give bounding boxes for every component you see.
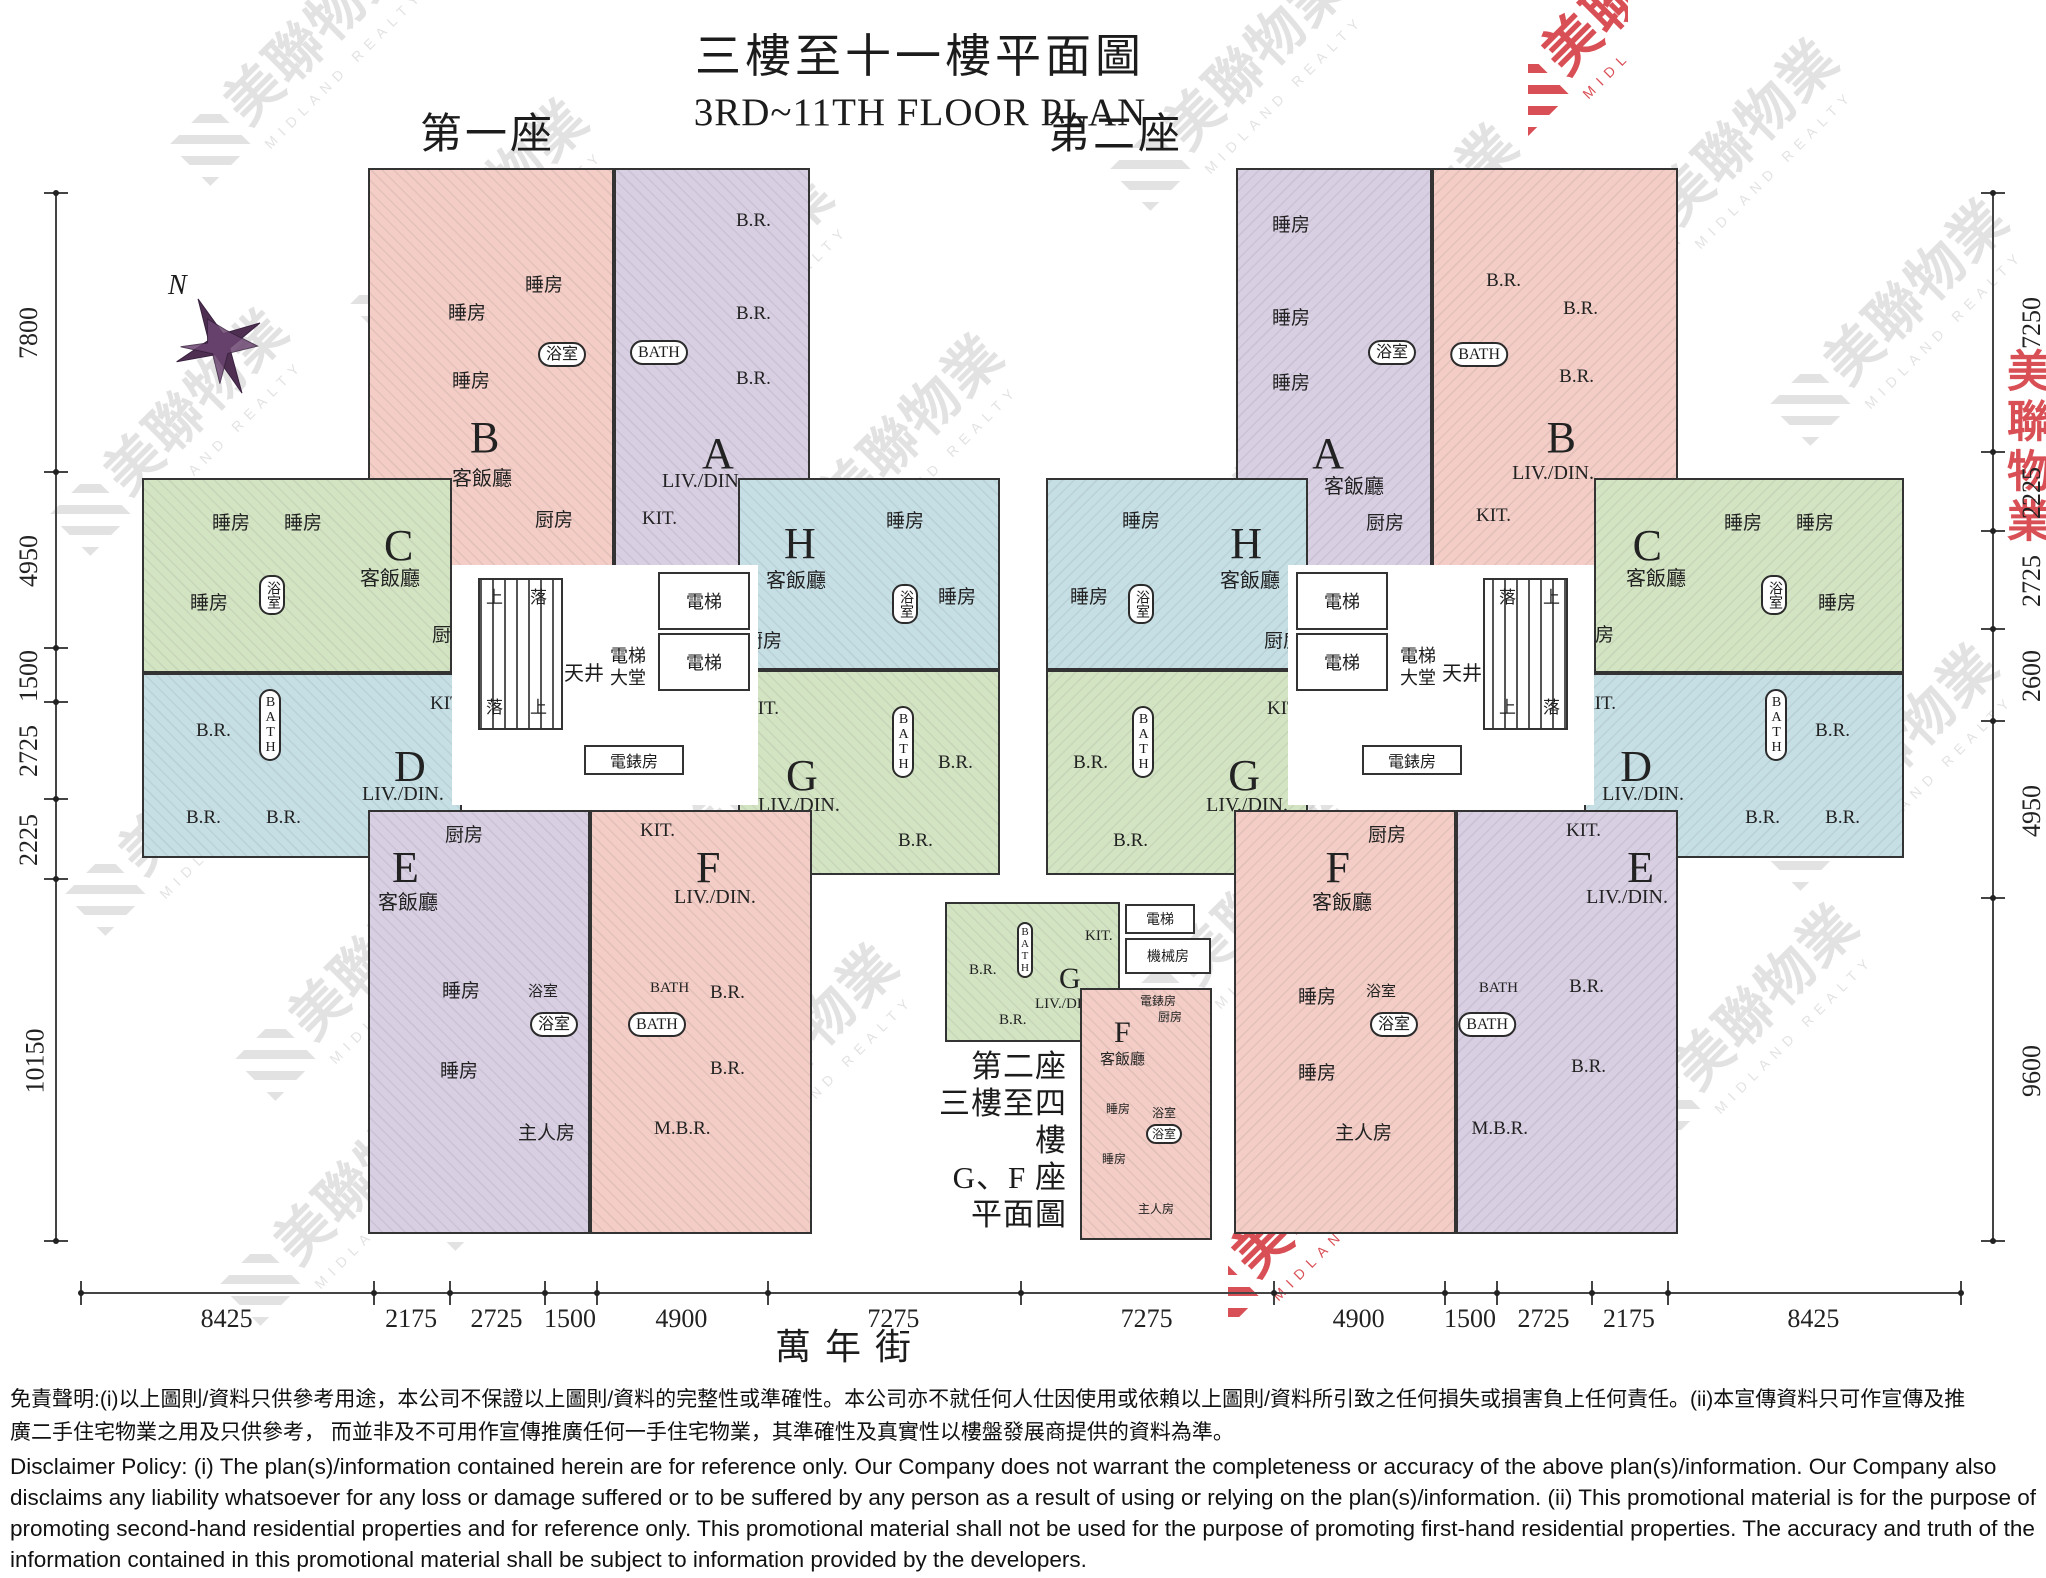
lightwell-label: 天井	[1442, 657, 1482, 686]
unit-letter: H	[784, 518, 816, 569]
midland-logo-icon	[1228, 1255, 1259, 1334]
room-label: B.R.	[1563, 298, 1598, 320]
dimension-tick-dot	[1665, 1290, 1671, 1296]
room-label: 睡房	[1724, 508, 1762, 535]
kitchen-label: KIT.	[642, 508, 677, 530]
room-label: 睡房	[1106, 1100, 1130, 1117]
stair-up-label: 上	[1543, 583, 1560, 608]
unit-letter: G	[1059, 962, 1081, 996]
dimension-label: 2725	[2017, 555, 2046, 607]
dimension-label: 2225	[14, 814, 44, 866]
room-label: 睡房	[1818, 588, 1856, 615]
unit-H: H 客飯廳 睡房 睡房 浴室 厨房	[1046, 478, 1308, 670]
bath-label: BATH	[630, 340, 688, 365]
dimension-tick-dot	[53, 190, 59, 196]
kitchen-label: 厨房	[1158, 1008, 1182, 1025]
midland-watermark-red: 美聯物業MIDLAND REALTY	[0, 0, 62, 140]
dimension-label: 2175	[379, 1304, 443, 1334]
disclaimer-chinese-line2: 廣二手住宅物業之用及只供參考， 而並非及不可用作宣傳推廣任何一手住宅物業，其準確…	[10, 1416, 2038, 1449]
room-label: B.R.	[196, 720, 231, 742]
unit-F: 厨房 F 客飯廳 浴室 浴室 睡房 睡房 主人房	[1234, 810, 1456, 1234]
master-bedroom-label: 主人房	[518, 1118, 575, 1145]
meter-room-label: 電錶房	[1140, 992, 1176, 1009]
room-label: 睡房	[440, 1056, 478, 1083]
dimension-tick-dot	[1990, 895, 1996, 901]
stair-down-label: 落	[486, 693, 503, 718]
room-label: B.R.	[1113, 830, 1148, 852]
dimension-label: 8425	[1781, 1304, 1845, 1334]
block1-label: 第一座	[420, 100, 555, 161]
dimension-label: 2725	[14, 725, 44, 777]
kitchen-label: KIT.	[1476, 505, 1511, 527]
lift-box: 電梯	[658, 572, 750, 630]
dimension-label: 2725	[1512, 1304, 1576, 1334]
unit-H: H 客飯廳 睡房 睡房 浴室 厨房	[738, 478, 1000, 670]
bath-label: 浴室	[892, 584, 918, 624]
bath-label: BATH	[1765, 689, 1787, 761]
dimension-label: 1500	[1438, 1304, 1502, 1334]
dimension-label: 1500	[538, 1304, 602, 1334]
disclaimer-english: Disclaimer Policy: (i) The plan(s)/infor…	[10, 1451, 2038, 1575]
bath-label: 浴室	[530, 1012, 578, 1037]
bath-label: 浴室	[1152, 1104, 1176, 1121]
dimension-label: 2225	[2017, 467, 2046, 519]
midland-logo-icon	[1528, 53, 1569, 135]
unit-C: 睡房 睡房 睡房 浴室 C 客飯廳 厨房	[1594, 478, 1904, 673]
unit-letter: F	[1114, 1016, 1131, 1050]
kitchen-label: KIT.	[1085, 928, 1113, 945]
dimension-axis	[55, 192, 57, 1240]
living-dining-label: 客飯廳	[1220, 564, 1280, 593]
midland-logo-icon	[64, 853, 146, 935]
living-dining-label: 客飯廳	[378, 886, 438, 915]
bath-label: 浴室	[1370, 1012, 1418, 1037]
title-english: 3RD~11TH FLOOR PLAN	[520, 90, 1320, 135]
master-bedroom-label: M.B.R.	[654, 1118, 711, 1140]
dimension-label: 4900	[1327, 1304, 1391, 1334]
lift-lobby-line2: 大堂	[1400, 667, 1436, 689]
room-label: 睡房	[448, 298, 486, 325]
dimension-label: 4950	[14, 535, 44, 587]
street-name: 萬年街	[700, 1318, 1000, 1370]
lift-box: 電梯	[1296, 633, 1388, 691]
dimension-tick-dot	[765, 1290, 771, 1296]
dimension-tick-dot	[1990, 528, 1996, 534]
dimension-label: 8425	[195, 1304, 259, 1334]
lift-lobby-line2: 大堂	[610, 667, 646, 689]
kitchen-label: KIT.	[640, 820, 675, 842]
bath-label: BATH	[892, 706, 914, 778]
lift-lobby-line1: 電梯	[1400, 645, 1436, 667]
dimension-tick-dot	[542, 1290, 548, 1296]
dimension-tick-dot	[594, 1290, 600, 1296]
bath-label: 浴室	[1761, 575, 1787, 615]
dimension-label: 7800	[14, 307, 44, 359]
living-dining-label: LIV./DIN.	[1512, 462, 1594, 485]
bath-label: BATH	[628, 1012, 686, 1037]
dimension-tick-dot	[1589, 1290, 1595, 1296]
room-label: B.R.	[898, 830, 933, 852]
living-dining-label: 客飯廳	[1324, 470, 1384, 499]
living-dining-label: LIV./DIN.	[674, 886, 756, 909]
room-label: B.R.	[1825, 807, 1860, 829]
room-label: 睡房	[1272, 303, 1310, 330]
dimension-tick-dot	[1990, 449, 1996, 455]
room-label: B.R.	[1559, 366, 1594, 388]
midland-watermark-red: 美聯物業MIDLAND REALTY	[1528, 0, 1628, 140]
master-bedroom-label: M.B.R.	[1472, 1118, 1529, 1140]
page-title: 三樓至十一樓平面圖 3RD~11TH FLOOR PLAN	[520, 20, 1320, 135]
dimension-tick-dot	[1990, 1238, 1996, 1244]
room-label: 睡房	[1796, 508, 1834, 535]
mini-plan-caption: 第二座 三樓至四樓 G、F 座平面圖	[935, 1048, 1067, 1233]
dimension-label: 1500	[14, 650, 44, 702]
dimension-label: 2600	[2017, 650, 2046, 702]
room-label: 睡房	[190, 588, 228, 615]
room-label: B.R.	[736, 368, 771, 390]
dimension-label: 9600	[2017, 1045, 2046, 1097]
dimension-label: 7250	[2017, 297, 2046, 349]
room-label: B.R.	[736, 210, 771, 232]
mini-caption-line: G、F 座平面圖	[935, 1159, 1067, 1233]
mini-caption-line: 三樓至四樓	[935, 1085, 1067, 1159]
bath-label: BATH	[1132, 706, 1154, 778]
living-dining-label: 客飯廳	[1626, 562, 1686, 591]
mini-machine-room: 機械房	[1125, 938, 1211, 974]
living-dining-label: 客飯廳	[360, 562, 420, 591]
meter-room-label: 電錶房	[1362, 745, 1462, 775]
dimension-tick-dot	[1271, 1290, 1277, 1296]
dimension-label: 4950	[2017, 785, 2046, 837]
bath-label: BATH	[259, 689, 281, 761]
dimension-tick-dot	[53, 796, 59, 802]
dimension-tick-dot	[53, 699, 59, 705]
master-bedroom-label: 主人房	[1335, 1118, 1392, 1145]
living-dining-label: LIV./DIN.	[1602, 783, 1684, 806]
kitchen-label: 厨房	[445, 820, 483, 847]
room-label: B.R.	[186, 807, 221, 829]
bath-label: 浴室	[1128, 584, 1154, 624]
unit-letter: B	[470, 412, 499, 463]
dimension-tick-dot	[53, 876, 59, 882]
dimension-tick-dot	[1442, 1290, 1448, 1296]
room-label: B.R.	[266, 807, 301, 829]
room-label: B.R.	[938, 752, 973, 774]
unit-letter: H	[1230, 518, 1262, 569]
bath-label: BATH	[1450, 342, 1508, 367]
room-label: B.R.	[999, 1012, 1027, 1029]
bath-label: 浴室	[1146, 1124, 1182, 1144]
dimension-tick-dot	[53, 645, 59, 651]
room-label: 睡房	[1102, 1150, 1126, 1167]
living-dining-label: LIV./DIN.	[662, 470, 744, 493]
room-label: B.R.	[1073, 752, 1108, 774]
dimension-tick-dot	[447, 1290, 453, 1296]
bath-label: BATH	[1017, 922, 1033, 978]
dimension-tick-dot	[53, 1238, 59, 1244]
dimension-tick-dot	[1958, 1290, 1964, 1296]
living-dining-label: 客飯廳	[452, 462, 512, 491]
room-label: 睡房	[1122, 506, 1160, 533]
room-label: B.R.	[1571, 1056, 1606, 1078]
bath-label: BATH	[650, 980, 689, 997]
kitchen-label: KIT.	[1566, 820, 1601, 842]
midland-logo-icon	[49, 473, 131, 555]
living-dining-label: LIV./DIN.	[1586, 886, 1668, 909]
unit-E: 厨房 E 客飯廳 睡房 浴室 浴室 睡房 主人房	[368, 810, 590, 1234]
stair-down-label: 落	[530, 583, 547, 608]
living-dining-label: 客飯廳	[1312, 886, 1372, 915]
dimension-tick-dot	[1990, 718, 1996, 724]
kitchen-label: 厨房	[535, 505, 573, 532]
meter-room-label: 電錶房	[584, 745, 684, 775]
lift-box: 電梯	[1296, 572, 1388, 630]
unit-letter: B	[1547, 412, 1576, 463]
midland-watermark: 美聯物業MIDLAND REALTY	[0, 0, 55, 140]
dimension-tick-dot	[1990, 190, 1996, 196]
bath-label: 浴室	[1368, 340, 1416, 365]
bath-label: 浴室	[259, 575, 285, 615]
dimension-tick-dot	[1990, 626, 1996, 632]
dimension-label: 7275	[1115, 1304, 1179, 1334]
floor-plan-page: 美聯物業MIDLAND REALTY美聯物業MIDLAND REALTY美聯物業…	[0, 0, 2046, 1578]
unit-C: 睡房 睡房 睡房 浴室 C 客飯廳 厨房	[142, 478, 452, 673]
lift-lobby-label: 電梯 大堂	[610, 645, 646, 689]
block2-label: 第二座	[1048, 100, 1183, 161]
kitchen-label: 厨房	[1368, 820, 1406, 847]
room-label: 睡房	[1298, 982, 1336, 1009]
room-label: 睡房	[442, 976, 480, 1003]
dimension-tick-dot	[78, 1290, 84, 1296]
dimension-axis	[1992, 192, 1994, 1240]
unit-F: KIT. F LIV./DIN. BATH BATH B.R. B.R. M.B…	[590, 810, 812, 1234]
dimension-label: 2175	[1597, 1304, 1661, 1334]
room-label: 睡房	[1298, 1058, 1336, 1085]
lift-box: 電梯	[658, 633, 750, 691]
room-label: 睡房	[886, 506, 924, 533]
disclaimer-chinese-line1: 免責聲明:(i)以上圖則/資料只供參考用途，本公司不保證以上圖則/資料的完整性或…	[10, 1383, 2038, 1416]
room-label: 睡房	[525, 270, 563, 297]
room-label: 睡房	[452, 366, 490, 393]
room-label: B.R.	[1745, 807, 1780, 829]
lift-lobby-label: 電梯 大堂	[1400, 645, 1436, 689]
room-label: B.R.	[1486, 270, 1521, 292]
master-bedroom-label: 主人房	[1138, 1200, 1174, 1217]
stair-up-label: 上	[486, 583, 503, 608]
room-label: 睡房	[284, 508, 322, 535]
stair-up-label: 上	[1499, 693, 1516, 718]
room-label: 睡房	[1272, 368, 1310, 395]
mini-caption-line: 第二座	[935, 1048, 1067, 1085]
lightwell-label: 天井	[564, 657, 604, 686]
room-label: 睡房	[1272, 210, 1310, 237]
room-label: B.R.	[1569, 976, 1604, 998]
stair-down-label: 落	[1543, 693, 1560, 718]
bath-label: BATH	[1479, 980, 1518, 997]
room-label: 睡房	[212, 508, 250, 535]
midland-watermark: 美聯物業MIDLAND REALTY	[1528, 0, 1628, 140]
bath-label: 浴室	[528, 980, 558, 1001]
room-label: B.R.	[969, 962, 997, 979]
stair-up-label: 上	[530, 693, 547, 718]
room-label: B.R.	[1815, 720, 1850, 742]
room-label: B.R.	[710, 982, 745, 1004]
bath-label: 浴室	[538, 342, 586, 367]
core-area: 上 落 落 上 天井 電梯 大堂 電梯 電梯 電錶房	[1288, 565, 1594, 805]
kitchen-label: 厨房	[1366, 508, 1404, 535]
tower-1-plan: 睡房 睡房 睡房 浴室 B 客飯廳 厨房 B.R. B.R. B.R. BATH…	[140, 165, 1000, 1235]
living-dining-label: LIV./DIN.	[362, 783, 444, 806]
room-label: 睡房	[1070, 582, 1108, 609]
dimension-label: 2725	[464, 1304, 528, 1334]
core-area: 上 落 落 上 天井 電梯 大堂 電梯 電梯 電錶房	[452, 565, 758, 805]
mini-lift-box: 電梯	[1125, 904, 1195, 934]
bath-label: 浴室	[1366, 980, 1396, 1001]
dimension-tick-dot	[1018, 1290, 1024, 1296]
dimension-tick-dot	[371, 1290, 377, 1296]
room-label: B.R.	[736, 303, 771, 325]
room-label: B.R.	[710, 1058, 745, 1080]
dimension-tick-dot	[1494, 1290, 1500, 1296]
stair-down-label: 落	[1499, 583, 1516, 608]
dimension-label: 10150	[21, 1028, 51, 1093]
title-chinese: 三樓至十一樓平面圖	[520, 20, 1320, 86]
mini-unit-F: 電錶房 厨房 F 客飯廳 睡房 浴室 浴室 睡房 主人房	[1080, 988, 1212, 1240]
living-dining-label: 客飯廳	[1100, 1048, 1145, 1069]
bath-label: BATH	[1458, 1012, 1516, 1037]
dimension-tick-dot	[53, 469, 59, 475]
lift-lobby-line1: 電梯	[610, 645, 646, 667]
room-label: 睡房	[938, 582, 976, 609]
disclaimer-block: 免責聲明:(i)以上圖則/資料只供參考用途，本公司不保證以上圖則/資料的完整性或…	[10, 1383, 2038, 1575]
living-dining-label: 客飯廳	[766, 564, 826, 593]
unit-E: KIT. E LIV./DIN. B.R. BATH BATH B.R. M.B…	[1456, 810, 1678, 1234]
